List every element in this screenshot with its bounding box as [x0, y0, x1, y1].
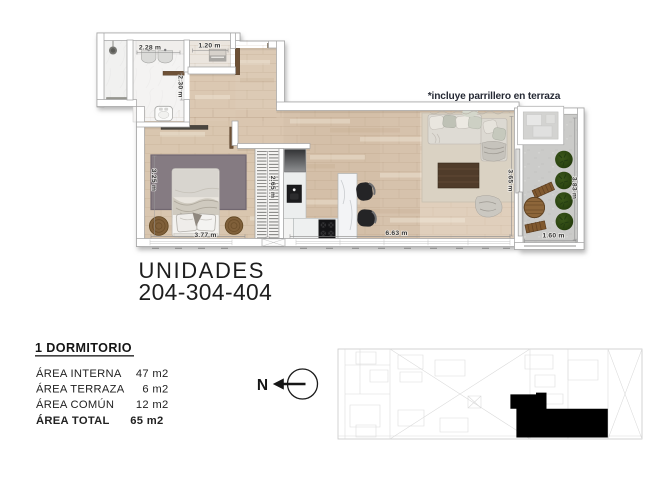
svg-text:3.83 m: 3.83 m — [571, 177, 578, 199]
svg-text:3.77 m: 3.77 m — [194, 232, 216, 239]
svg-text:2.65 m: 2.65 m — [269, 176, 276, 198]
svg-text:N: N — [257, 377, 268, 394]
svg-text:12 m2: 12 m2 — [136, 399, 169, 411]
svg-text:1 DORMITORIO: 1 DORMITORIO — [35, 341, 132, 355]
svg-text:3.65 m: 3.65 m — [507, 169, 514, 191]
svg-text:ÁREA TOTAL: ÁREA TOTAL — [36, 414, 110, 427]
svg-text:ÁREA COMÚN: ÁREA COMÚN — [36, 398, 114, 411]
svg-text:3.25 m: 3.25 m — [150, 169, 157, 191]
svg-text:47 m2: 47 m2 — [136, 368, 169, 380]
svg-text:2.30 m: 2.30 m — [176, 75, 183, 97]
svg-text:ÁREA INTERNA: ÁREA INTERNA — [36, 367, 122, 380]
svg-text:*incluye parrillero en terraza: *incluye parrillero en terraza — [428, 91, 561, 102]
svg-text:6 m2: 6 m2 — [142, 383, 168, 395]
svg-text:1.60 m: 1.60 m — [542, 233, 564, 240]
svg-text:6.63 m: 6.63 m — [385, 230, 407, 237]
svg-text:ÁREA TERRAZA: ÁREA TERRAZA — [36, 382, 125, 395]
svg-text:2.28 m: 2.28 m — [139, 44, 161, 51]
svg-text:65 m2: 65 m2 — [130, 415, 163, 427]
svg-text:204-304-404: 204-304-404 — [139, 279, 273, 305]
svg-text:1.20 m: 1.20 m — [198, 43, 220, 50]
